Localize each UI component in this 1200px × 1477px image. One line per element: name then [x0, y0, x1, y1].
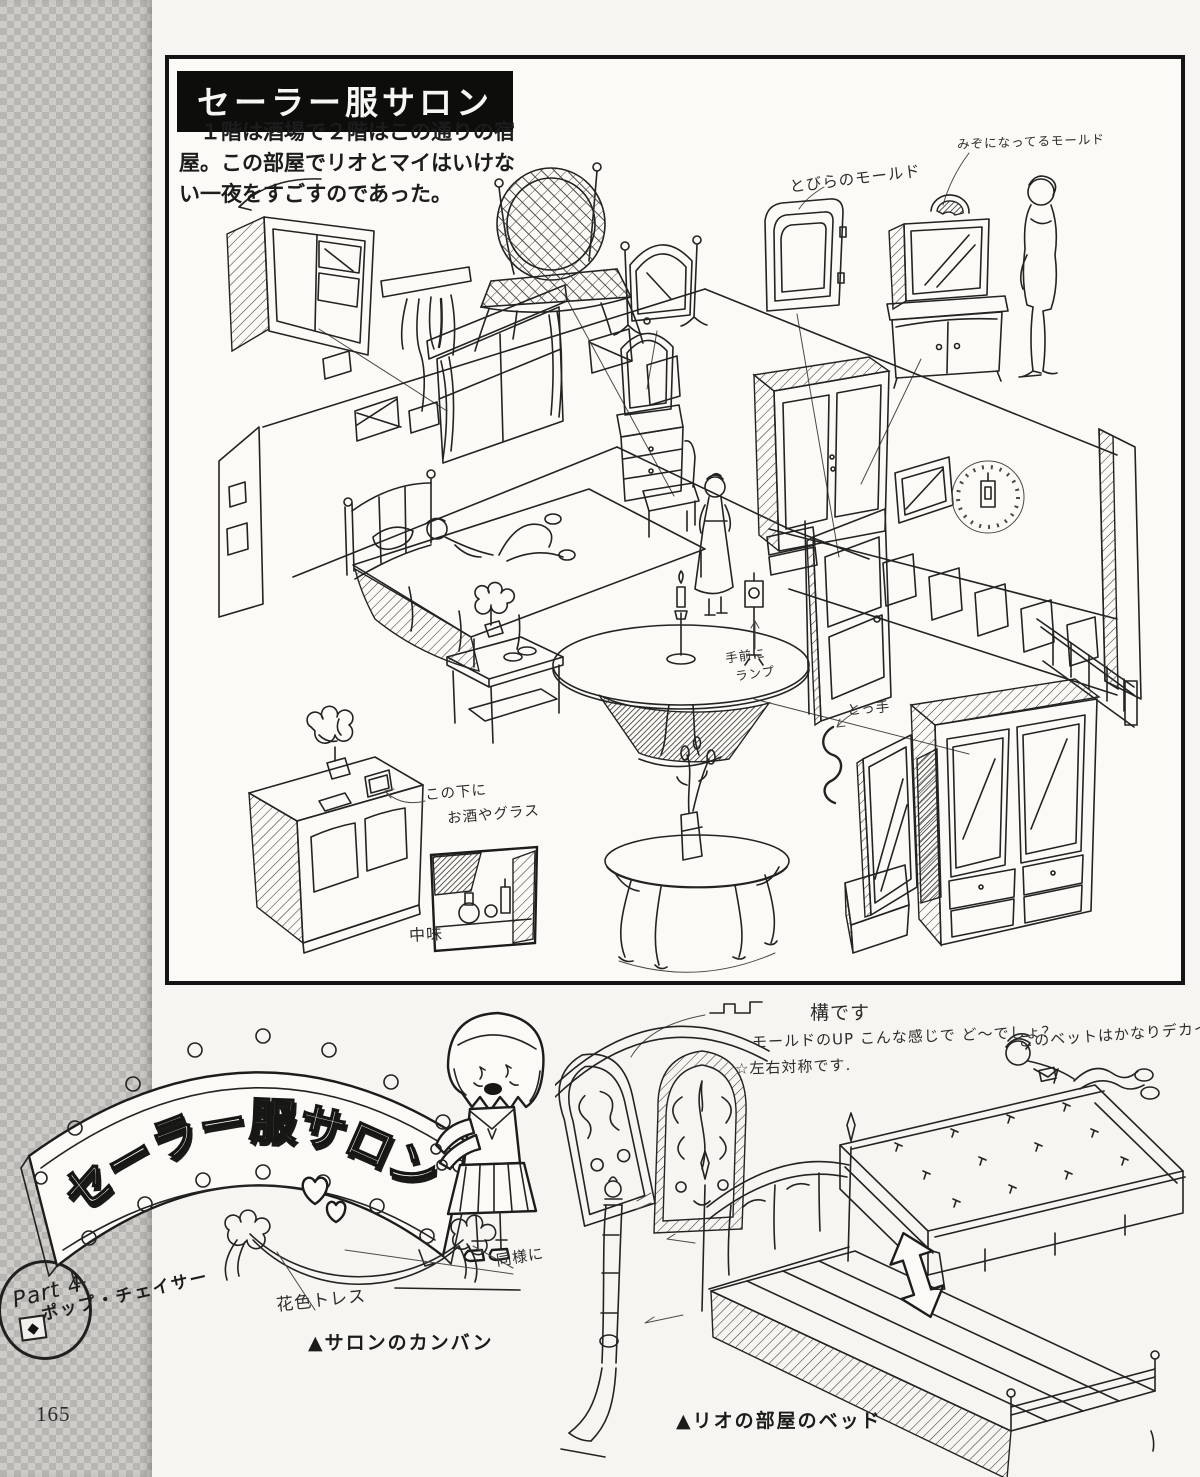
room-wardrobe-sketch — [754, 357, 889, 575]
room-bed-sketch — [344, 470, 705, 671]
annotation-handle: とっ手 — [846, 695, 891, 719]
cheval-mirror-detail-sketch — [614, 236, 707, 335]
bed-design-drawing — [555, 993, 1200, 1477]
contents-inset-sketch — [431, 847, 537, 951]
mirror-cabinet-detail-sketch — [887, 195, 1008, 388]
label-symmetry-note: ☆左右対称です. — [735, 1054, 852, 1079]
vase-table-sketch — [605, 737, 789, 972]
open-wardrobe-sketch — [823, 679, 1099, 953]
sign-caption: ▲サロンのカンバン — [308, 1328, 494, 1355]
label-structure: 構です — [810, 998, 870, 1025]
curtain-valance-detail-sketch — [381, 267, 471, 411]
standing-figure-sketch — [1019, 176, 1057, 377]
construction-lines — [319, 153, 969, 754]
sideboard-sketch — [249, 706, 425, 953]
bed-caption: ▲リオの部屋のベッド — [676, 1406, 882, 1433]
door-detail-sketch — [765, 199, 846, 311]
section-description: １階は酒場で２階はこの通りの宿屋。この部屋でリオとマイはいけない一夜をすごすので… — [179, 117, 531, 210]
artwork-frame: セーラー服サロン １階は酒場で２階はこの通りの宿屋。この部屋でリオとマイはいけな… — [165, 55, 1185, 985]
room-walls-sketch — [219, 285, 1141, 727]
page-number: 165 — [36, 1402, 71, 1427]
annotation-contents: 中味 — [408, 920, 443, 946]
room-figure-sketch — [695, 474, 733, 615]
mattress-sketch — [840, 1085, 1185, 1275]
dresser-sketch — [617, 318, 699, 537]
